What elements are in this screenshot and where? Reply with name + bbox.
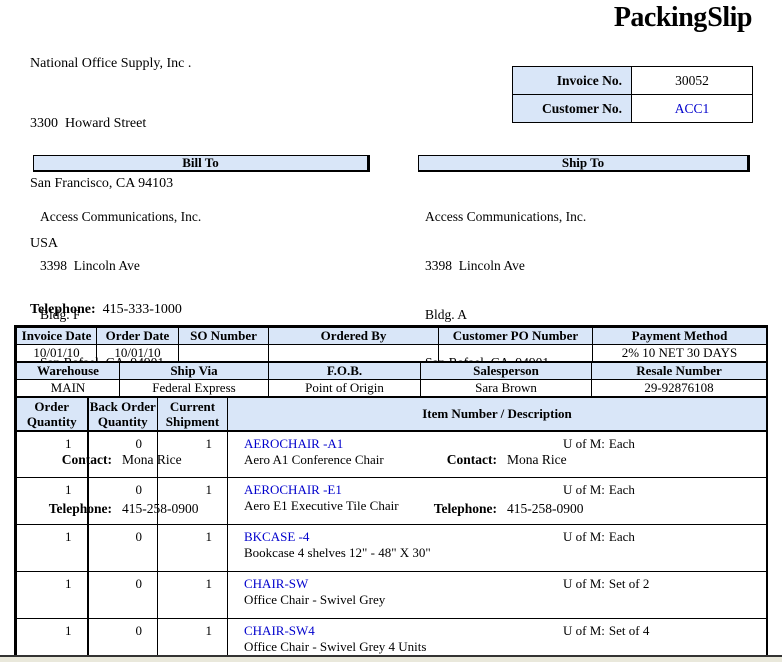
item-number-link[interactable]: AEROCHAIR -E1 (244, 482, 766, 498)
col-fob: F.O.B. (269, 363, 421, 380)
col-back-order-quantity: Back Order Quantity (88, 398, 158, 431)
item-description-cell: CHAIR-SW Office Chair - Swivel Grey U of… (228, 572, 767, 619)
back-order-qty: 0 (88, 431, 158, 478)
ordered-by-value (269, 345, 439, 362)
col-so-number: SO Number (179, 328, 269, 345)
uom-value: Each (609, 436, 635, 451)
current-shipment-qty: 1 (158, 525, 228, 572)
item-row: 1 0 1 CHAIR-SW Office Chair - Swivel Gre… (17, 572, 767, 619)
col-order-quantity: Order Quantity (17, 398, 88, 431)
uom-row: U of M:Each (563, 482, 635, 498)
col-salesperson: Salesperson (421, 363, 592, 380)
order-qty: 1 (17, 431, 88, 478)
header-row: Warehouse Ship Via F.O.B. Salesperson Re… (17, 363, 767, 380)
invoice-date-value: 10/01/10 (17, 345, 97, 362)
col-ship-via: Ship Via (120, 363, 269, 380)
invoice-no-label: Invoice No. (513, 67, 632, 95)
uom-label: U of M: (563, 436, 605, 451)
uom-row: U of M:Each (563, 436, 635, 452)
order-header-table-1: Invoice Date Order Date SO Number Ordere… (16, 327, 767, 362)
customer-no-label: Customer No. (513, 95, 632, 123)
col-current-shipment: Current Shipment (158, 398, 228, 431)
resale-number-value: 29-92876108 (592, 380, 767, 397)
item-description: Aero E1 Executive Tile Chair (244, 498, 766, 514)
col-warehouse: Warehouse (17, 363, 120, 380)
company-address-line: 3300 Howard Street (30, 114, 191, 134)
uom-value: Each (609, 529, 635, 544)
back-order-qty: 0 (88, 525, 158, 572)
order-header-table-2: Warehouse Ship Via F.O.B. Salesperson Re… (16, 362, 767, 397)
col-invoice-date: Invoice Date (17, 328, 97, 345)
col-ordered-by: Ordered By (269, 328, 439, 345)
value-row: MAIN Federal Express Point of Origin Sar… (17, 380, 767, 397)
item-number-link[interactable]: BKCASE -4 (244, 529, 766, 545)
current-shipment-qty: 1 (158, 431, 228, 478)
uom-row: U of M:Each (563, 529, 635, 545)
uom-value: Each (609, 482, 635, 497)
uom-label: U of M: (563, 623, 605, 638)
order-details-block: Invoice Date Order Date SO Number Ordere… (14, 325, 768, 662)
order-qty: 1 (17, 478, 88, 525)
warehouse-value: MAIN (17, 380, 120, 397)
item-description-cell: AEROCHAIR -A1 Aero A1 Conference Chair U… (228, 431, 767, 478)
items-header-row: Order Quantity Back Order Quantity Curre… (17, 398, 767, 431)
back-order-qty: 0 (88, 478, 158, 525)
item-number-link[interactable]: CHAIR-SW (244, 576, 766, 592)
ship-to-line: Bldg. A (425, 307, 586, 323)
ship-to-line: Access Communications, Inc. (425, 209, 586, 225)
bill-to-line: 3398 Lincoln Ave (40, 258, 201, 274)
ship-to-header: Ship To (418, 155, 750, 172)
bill-to-line: Access Communications, Inc. (40, 209, 201, 225)
value-row: 10/01/10 10/01/10 2% 10 NET 30 DAYS (17, 345, 767, 362)
col-customer-po: Customer PO Number (439, 328, 593, 345)
current-shipment-qty: 1 (158, 478, 228, 525)
item-description-cell: AEROCHAIR -E1 Aero E1 Executive Tile Cha… (228, 478, 767, 525)
col-order-date: Order Date (97, 328, 179, 345)
invoice-no-row: Invoice No. 30052 (513, 67, 753, 95)
bill-to-header: Bill To (33, 155, 370, 172)
invoice-no-value: 30052 (632, 67, 753, 95)
col-payment-method: Payment Method (593, 328, 767, 345)
item-row: 1 0 1 BKCASE -4 Bookcase 4 shelves 12" -… (17, 525, 767, 572)
item-description: Bookcase 4 shelves 12" - 48" X 30" (244, 545, 766, 561)
item-description: Aero A1 Conference Chair (244, 452, 766, 468)
uom-row: U of M:Set of 4 (563, 623, 649, 639)
ship-via-value: Federal Express (120, 380, 269, 397)
items-table: Order Quantity Back Order Quantity Curre… (16, 397, 767, 662)
item-description: Office Chair - Swivel Grey 4 Units (244, 639, 766, 655)
uom-label: U of M: (563, 576, 605, 591)
order-date-value: 10/01/10 (97, 345, 179, 362)
invoice-info-table: Invoice No. 30052 Customer No. ACC1 (512, 66, 753, 123)
customer-no-row: Customer No. ACC1 (513, 95, 753, 123)
item-row: 1 0 1 AEROCHAIR -E1 Aero E1 Executive Ti… (17, 478, 767, 525)
col-item-number-description: Item Number / Description (228, 398, 767, 431)
item-row: 1 0 1 AEROCHAIR -A1 Aero A1 Conference C… (17, 431, 767, 478)
uom-label: U of M: (563, 529, 605, 544)
item-number-link[interactable]: CHAIR-SW4 (244, 623, 766, 639)
order-qty: 1 (17, 572, 88, 619)
so-number-value (179, 345, 269, 362)
page-bottom-edge (0, 655, 782, 662)
uom-row: U of M:Set of 2 (563, 576, 649, 592)
back-order-qty: 0 (88, 572, 158, 619)
company-name: National Office Supply, Inc . (30, 54, 191, 74)
customer-no-value[interactable]: ACC1 (632, 95, 753, 123)
salesperson-value: Sara Brown (421, 380, 592, 397)
uom-value: Set of 4 (609, 623, 649, 638)
header-row: Invoice Date Order Date SO Number Ordere… (17, 328, 767, 345)
uom-label: U of M: (563, 482, 605, 497)
customer-po-value (439, 345, 593, 362)
bill-to-line: Bldg. F (40, 307, 201, 323)
item-description-cell: BKCASE -4 Bookcase 4 shelves 12" - 48" X… (228, 525, 767, 572)
payment-method-value: 2% 10 NET 30 DAYS (593, 345, 767, 362)
current-shipment-qty: 1 (158, 572, 228, 619)
fob-value: Point of Origin (269, 380, 421, 397)
page-title: Packing Slip (614, 2, 752, 34)
uom-value: Set of 2 (609, 576, 649, 591)
item-description: Office Chair - Swivel Grey (244, 592, 766, 608)
order-qty: 1 (17, 525, 88, 572)
item-number-link[interactable]: AEROCHAIR -A1 (244, 436, 766, 452)
col-resale-number: Resale Number (592, 363, 767, 380)
ship-to-line: 3398 Lincoln Ave (425, 258, 586, 274)
